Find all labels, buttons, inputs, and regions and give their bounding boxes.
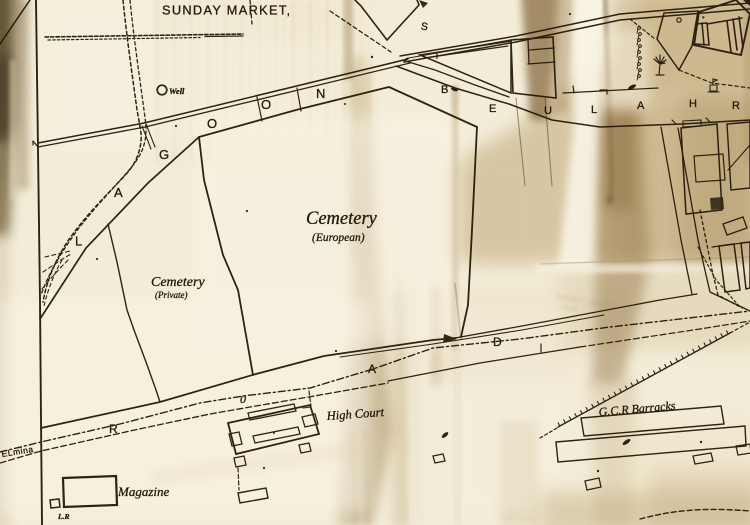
svg-text:D: D	[493, 335, 502, 349]
svg-text:U: U	[544, 105, 552, 117]
svg-text:A: A	[368, 362, 376, 376]
svg-text:R: R	[732, 100, 740, 112]
svg-text:A: A	[637, 100, 645, 112]
svg-text:Cemetery: Cemetery	[151, 275, 205, 290]
svg-text:(European): (European)	[312, 232, 365, 244]
svg-text:H: H	[689, 98, 697, 110]
svg-text:R: R	[109, 422, 118, 436]
svg-text:Magazine: Magazine	[117, 484, 170, 499]
svg-text:0: 0	[240, 392, 246, 406]
svg-text:(Private): (Private)	[155, 290, 187, 300]
svg-text:L: L	[591, 104, 597, 116]
svg-text:L.R: L.R	[57, 512, 69, 521]
svg-text:Well: Well	[169, 86, 185, 96]
svg-text:N: N	[316, 86, 325, 101]
svg-text:E: E	[489, 103, 496, 115]
svg-text:O: O	[207, 116, 217, 131]
svg-text:Cemetery: Cemetery	[306, 209, 378, 229]
svg-text:L: L	[75, 234, 82, 249]
svg-text:G: G	[159, 147, 169, 162]
svg-text:A: A	[114, 185, 123, 200]
svg-text:SUNDAY MARKET,: SUNDAY MARKET,	[162, 3, 291, 18]
svg-text:B: B	[441, 84, 448, 96]
svg-text:O: O	[261, 97, 271, 112]
